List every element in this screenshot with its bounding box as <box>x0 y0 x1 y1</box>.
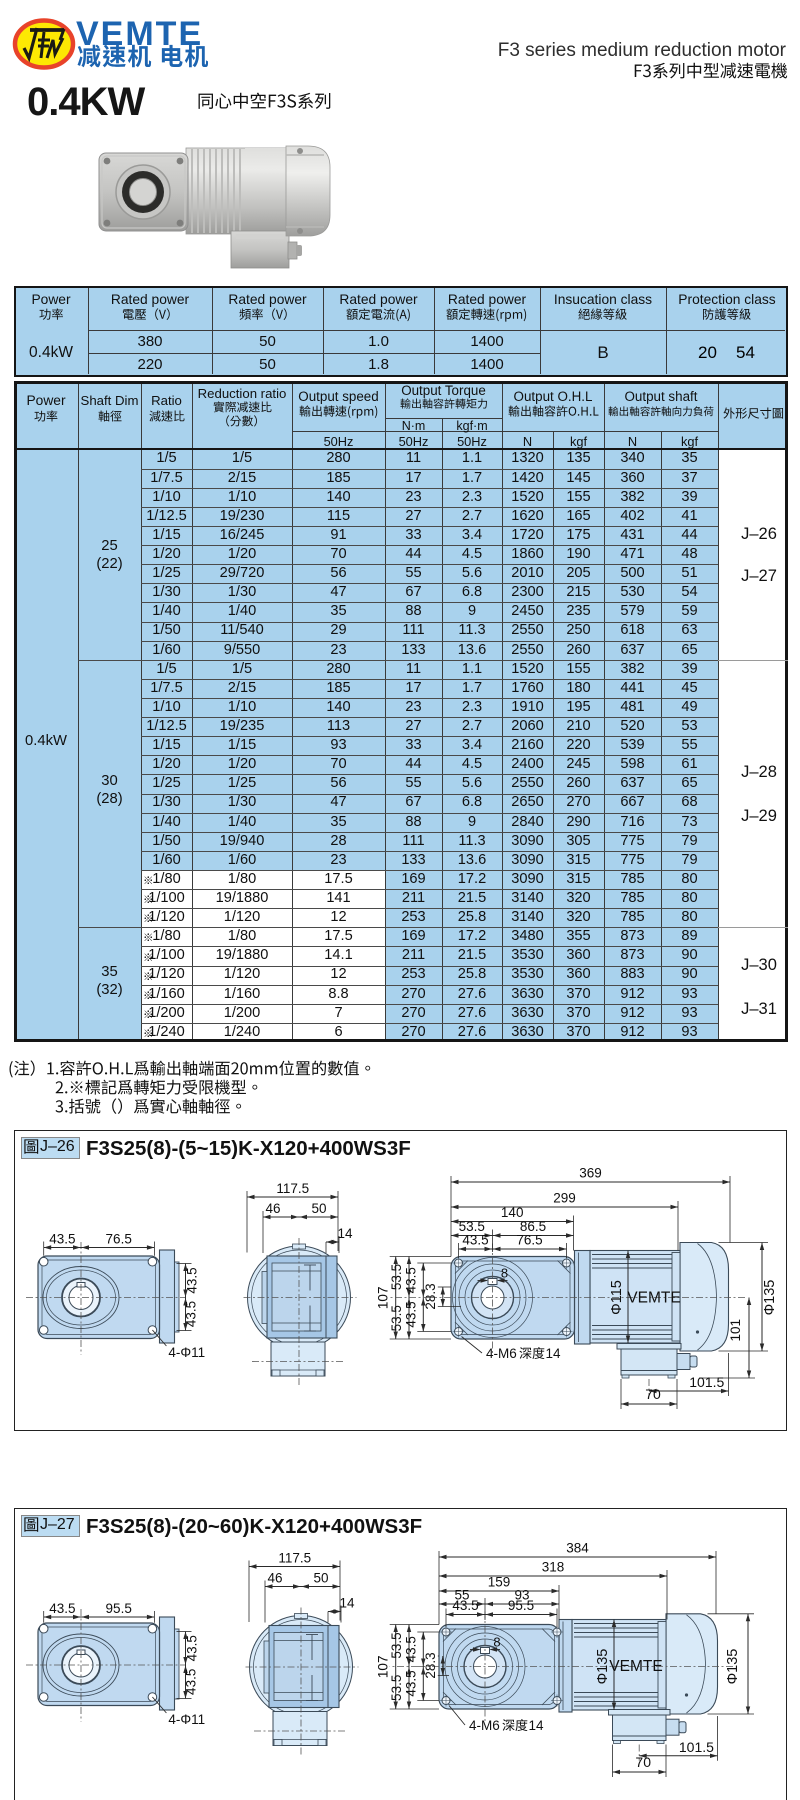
svg-text:28.3: 28.3 <box>423 1283 438 1309</box>
svg-text:43.5: 43.5 <box>403 1636 418 1662</box>
svg-text:299: 299 <box>553 1191 576 1206</box>
svg-text:46: 46 <box>265 1201 280 1216</box>
svg-text:43.5: 43.5 <box>185 1635 200 1661</box>
svg-text:101: 101 <box>728 1319 743 1342</box>
svg-text:76.5: 76.5 <box>516 1233 542 1248</box>
svg-text:43.5: 43.5 <box>49 1601 75 1616</box>
svg-text:43.5: 43.5 <box>184 1669 199 1695</box>
svg-text:Φ135: Φ135 <box>725 1649 741 1685</box>
svg-text:Φ115: Φ115 <box>609 1280 625 1315</box>
svg-text:50: 50 <box>313 1571 328 1586</box>
svg-text:53.5: 53.5 <box>389 1675 404 1701</box>
svg-text:117.5: 117.5 <box>278 1551 311 1566</box>
svg-text:43.5: 43.5 <box>452 1598 478 1613</box>
svg-text:43.5: 43.5 <box>462 1233 488 1248</box>
svg-text:14: 14 <box>337 1226 353 1241</box>
svg-text:76.5: 76.5 <box>106 1232 132 1247</box>
svg-text:95.5: 95.5 <box>508 1598 534 1613</box>
svg-text:53.5: 53.5 <box>389 1264 404 1290</box>
svg-text:140: 140 <box>501 1205 524 1220</box>
svg-text:53.5: 53.5 <box>389 1305 404 1331</box>
svg-text:14: 14 <box>529 1718 545 1733</box>
svg-text:70: 70 <box>645 1386 661 1402</box>
svg-text:50: 50 <box>311 1201 326 1216</box>
svg-text:384: 384 <box>566 1541 589 1556</box>
svg-text:43.5: 43.5 <box>403 1267 418 1293</box>
svg-text:53.5: 53.5 <box>389 1632 404 1658</box>
svg-text:43.5: 43.5 <box>184 1301 199 1327</box>
svg-text:VEMTE: VEMTE <box>609 1658 662 1675</box>
svg-text:4-Φ11: 4-Φ11 <box>168 1712 205 1727</box>
svg-text:8: 8 <box>493 1635 500 1650</box>
svg-text:70: 70 <box>635 1754 651 1770</box>
svg-text:43.5: 43.5 <box>185 1267 200 1293</box>
svg-text:318: 318 <box>542 1560 565 1575</box>
svg-text:95.5: 95.5 <box>106 1601 132 1616</box>
svg-text:159: 159 <box>488 1575 511 1590</box>
svg-text:VEMTE: VEMTE <box>627 1290 680 1307</box>
svg-text:101.5: 101.5 <box>679 1739 714 1755</box>
svg-text:28.3: 28.3 <box>423 1652 438 1678</box>
svg-text:117.5: 117.5 <box>276 1181 309 1196</box>
svg-text:43.5: 43.5 <box>49 1232 75 1247</box>
svg-text:43.5: 43.5 <box>403 1301 418 1327</box>
svg-text:4-M6: 4-M6 <box>469 1718 500 1733</box>
svg-text:369: 369 <box>579 1166 602 1181</box>
svg-text:4-M6: 4-M6 <box>486 1346 517 1361</box>
svg-text:8: 8 <box>501 1266 508 1281</box>
svg-text:101.5: 101.5 <box>689 1374 724 1390</box>
svg-text:46: 46 <box>267 1571 282 1586</box>
svg-text:43.5: 43.5 <box>403 1670 418 1696</box>
svg-text:4-Φ11: 4-Φ11 <box>168 1345 205 1360</box>
svg-text:Φ135: Φ135 <box>762 1280 778 1316</box>
svg-text:14: 14 <box>546 1346 562 1361</box>
svg-text:14: 14 <box>339 1596 355 1611</box>
